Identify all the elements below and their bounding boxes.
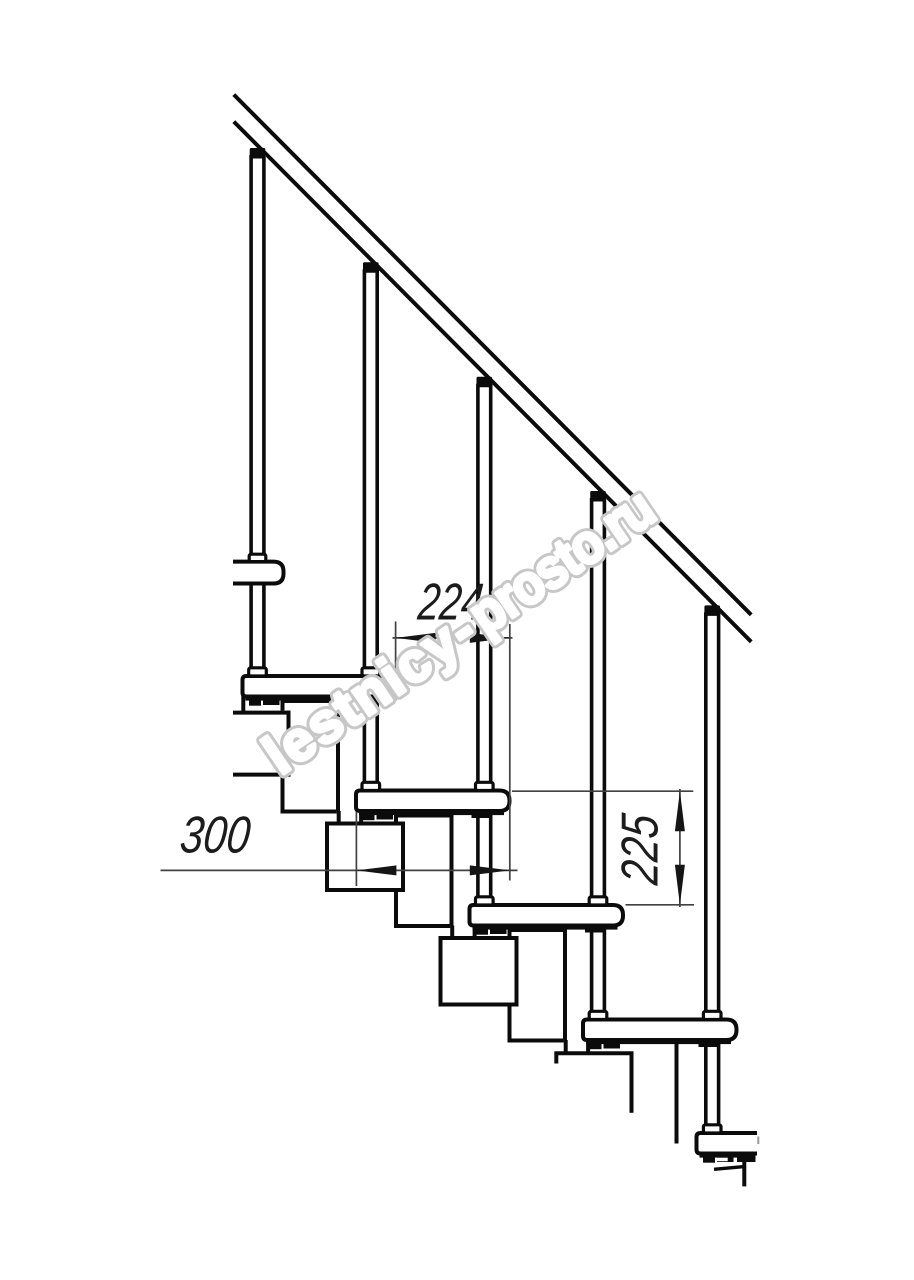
svg-text:225: 225 (611, 810, 669, 887)
svg-text:300: 300 (177, 806, 253, 864)
